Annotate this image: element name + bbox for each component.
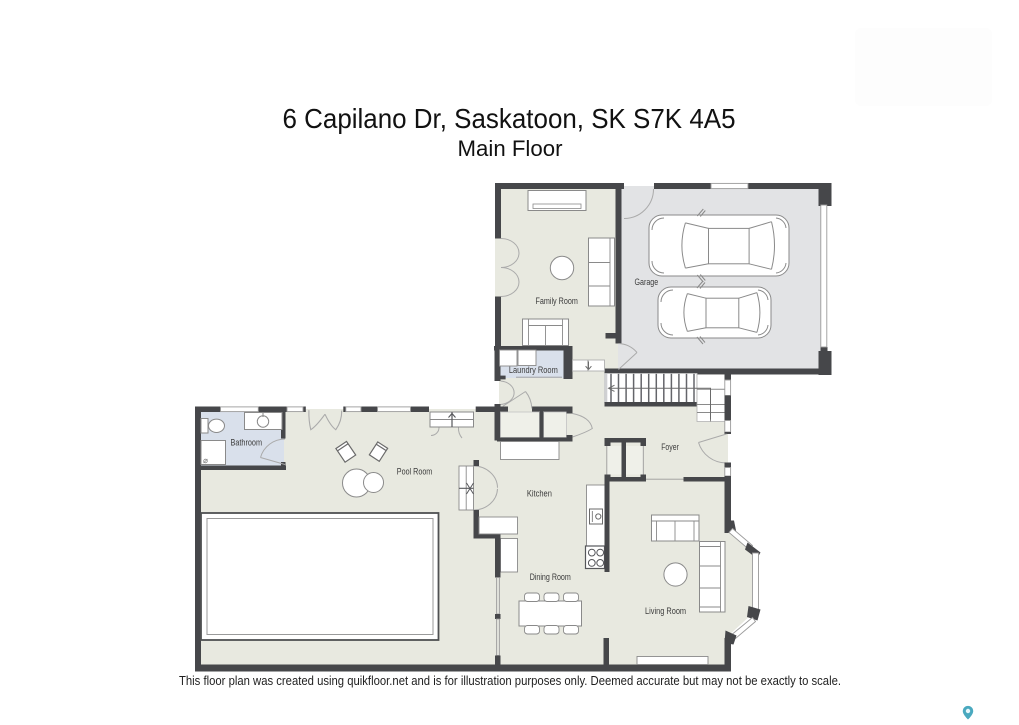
- svg-text:Living Room: Living Room: [645, 606, 686, 616]
- svg-text:Kitchen: Kitchen: [527, 489, 552, 499]
- svg-text:Pool Room: Pool Room: [397, 467, 433, 477]
- svg-text:Foyer: Foyer: [661, 442, 679, 452]
- svg-text:Garage: Garage: [635, 277, 659, 287]
- svg-text:Bathroom: Bathroom: [231, 437, 263, 447]
- svg-text:Laundry Room: Laundry Room: [509, 365, 558, 375]
- svg-text:This floor plan was created us: This floor plan was created using quikfl…: [179, 673, 841, 688]
- svg-text:6 Capilano Dr, Saskatoon, SK S: 6 Capilano Dr, Saskatoon, SK S7K 4A5: [283, 103, 736, 134]
- svg-text:Family Room: Family Room: [536, 296, 578, 306]
- svg-text:Main Floor: Main Floor: [458, 136, 563, 161]
- svg-text:Dining Room: Dining Room: [530, 572, 571, 582]
